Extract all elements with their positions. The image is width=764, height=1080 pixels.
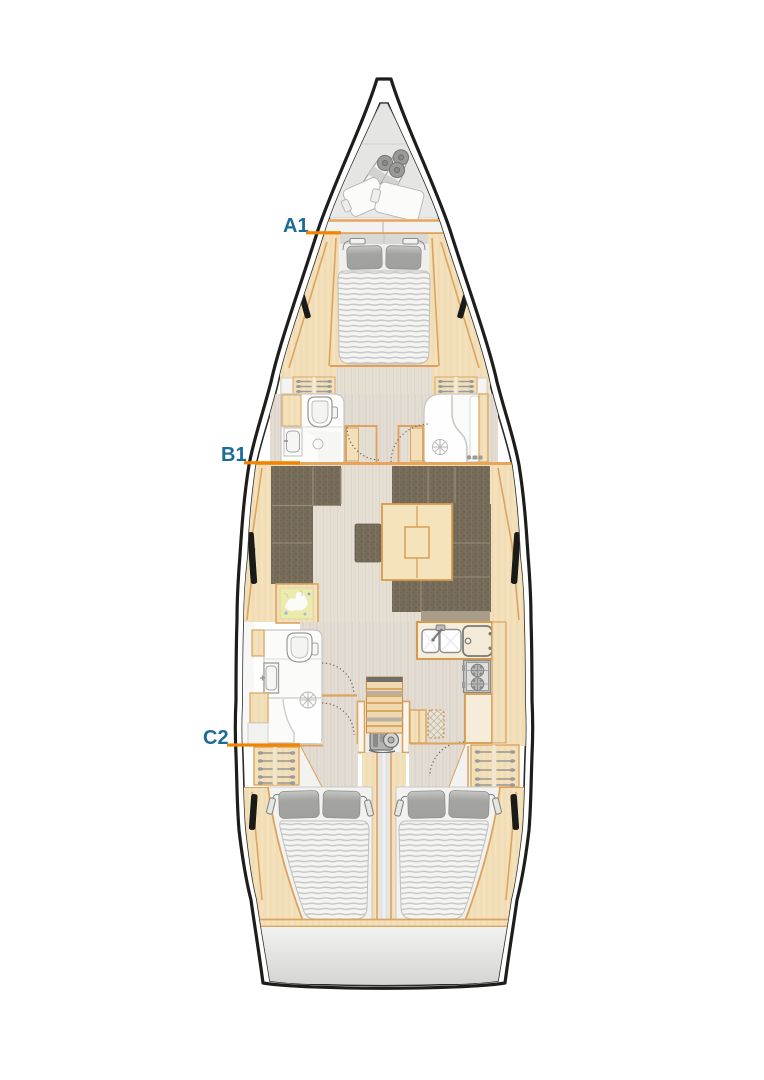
svg-text:A1: A1	[283, 215, 309, 237]
svg-text:C2: C2	[203, 727, 229, 749]
svg-text:B1: B1	[221, 444, 247, 466]
